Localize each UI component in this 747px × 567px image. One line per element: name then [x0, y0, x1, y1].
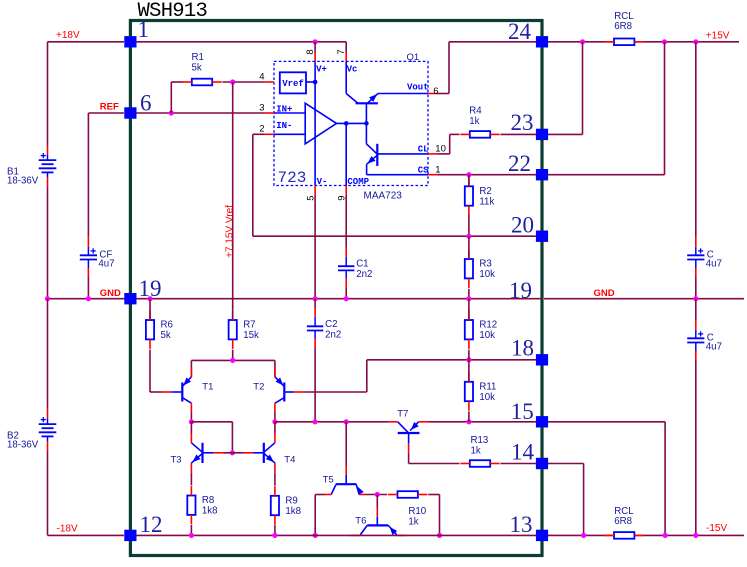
- svg-text:-15V: -15V: [706, 523, 727, 534]
- svg-text:4u7: 4u7: [706, 259, 722, 270]
- svg-text:15: 15: [511, 399, 534, 424]
- svg-text:+18V: +18V: [56, 30, 80, 41]
- svg-text:+7.15V Vref: +7.15V Vref: [225, 205, 236, 258]
- svg-text:T1: T1: [202, 382, 213, 393]
- svg-text:18: 18: [511, 336, 534, 361]
- svg-text:1k8: 1k8: [202, 506, 218, 517]
- svg-text:5k: 5k: [161, 330, 171, 341]
- svg-text:Q1: Q1: [407, 52, 420, 63]
- svg-text:Vref: Vref: [282, 79, 304, 89]
- svg-text:RCL: RCL: [614, 506, 634, 517]
- svg-text:R4: R4: [469, 106, 482, 117]
- svg-text:20: 20: [511, 212, 534, 237]
- svg-text:24: 24: [508, 19, 532, 44]
- svg-text:5k: 5k: [192, 62, 202, 73]
- svg-text:2n2: 2n2: [325, 329, 341, 340]
- svg-text:COMP: COMP: [347, 177, 369, 187]
- svg-text:7: 7: [336, 49, 347, 54]
- svg-text:T4: T4: [284, 454, 295, 465]
- svg-text:6: 6: [140, 91, 152, 116]
- svg-text:22: 22: [508, 151, 531, 176]
- svg-text:1k8: 1k8: [285, 506, 301, 517]
- svg-text:10k: 10k: [479, 269, 495, 280]
- svg-text:R1: R1: [192, 52, 204, 63]
- svg-text:12: 12: [140, 512, 163, 537]
- svg-text:CL: CL: [418, 145, 429, 155]
- svg-text:723: 723: [278, 169, 307, 187]
- svg-text:-18V: -18V: [57, 524, 78, 535]
- svg-text:1k: 1k: [408, 516, 418, 527]
- svg-text:4u7: 4u7: [98, 259, 114, 270]
- svg-text:18-36V: 18-36V: [7, 176, 39, 187]
- svg-text:T2: T2: [253, 382, 264, 393]
- svg-text:R8: R8: [202, 495, 214, 506]
- svg-text:REF: REF: [100, 101, 119, 112]
- svg-text:GND: GND: [100, 288, 121, 299]
- svg-text:C1: C1: [356, 259, 368, 270]
- svg-text:T7: T7: [397, 409, 408, 420]
- svg-text:C2: C2: [325, 319, 337, 330]
- svg-text:18-36V: 18-36V: [7, 440, 39, 451]
- svg-text:MAA723: MAA723: [364, 191, 403, 202]
- svg-text:6R8: 6R8: [614, 21, 632, 32]
- svg-text:14: 14: [511, 439, 535, 464]
- svg-text:R7: R7: [243, 320, 255, 331]
- svg-text:4u7: 4u7: [706, 342, 722, 353]
- svg-text:R2: R2: [479, 186, 491, 197]
- svg-text:R6: R6: [161, 320, 173, 331]
- svg-text:T6: T6: [355, 516, 366, 527]
- svg-text:GND: GND: [594, 288, 615, 299]
- svg-text:T5: T5: [323, 475, 334, 486]
- svg-text:11k: 11k: [479, 197, 494, 208]
- svg-text:R13: R13: [471, 435, 489, 446]
- svg-text:R10: R10: [408, 506, 426, 517]
- svg-text:4: 4: [259, 71, 264, 82]
- svg-text:R9: R9: [285, 495, 297, 506]
- svg-text:R11: R11: [479, 381, 496, 392]
- svg-text:V-: V-: [317, 177, 328, 187]
- svg-text:23: 23: [511, 110, 534, 135]
- svg-text:15k: 15k: [243, 330, 259, 341]
- svg-text:1: 1: [435, 164, 440, 175]
- svg-text:IN-: IN-: [276, 121, 292, 131]
- svg-text:2: 2: [259, 124, 264, 135]
- svg-text:1k: 1k: [469, 116, 479, 127]
- svg-text:1: 1: [138, 17, 150, 42]
- svg-text:RCL: RCL: [614, 11, 634, 22]
- svg-text:3: 3: [259, 102, 264, 113]
- svg-text:1k: 1k: [471, 445, 481, 456]
- svg-text:6R8: 6R8: [614, 516, 632, 527]
- svg-text:+15V: +15V: [706, 31, 730, 42]
- svg-text:Vc: Vc: [347, 65, 358, 75]
- svg-text:V+: V+: [316, 65, 327, 75]
- svg-text:10k: 10k: [479, 330, 495, 341]
- svg-text:8: 8: [305, 49, 316, 54]
- svg-text:T3: T3: [171, 454, 182, 465]
- svg-text:R12: R12: [479, 320, 497, 331]
- svg-text:Vout: Vout: [407, 83, 429, 93]
- svg-text:10: 10: [435, 143, 446, 154]
- svg-text:2n2: 2n2: [356, 269, 372, 280]
- svg-text:6: 6: [433, 86, 438, 97]
- svg-text:10k: 10k: [479, 392, 495, 403]
- svg-text:13: 13: [510, 512, 533, 537]
- svg-text:R3: R3: [479, 259, 491, 270]
- svg-text:CS: CS: [418, 166, 429, 176]
